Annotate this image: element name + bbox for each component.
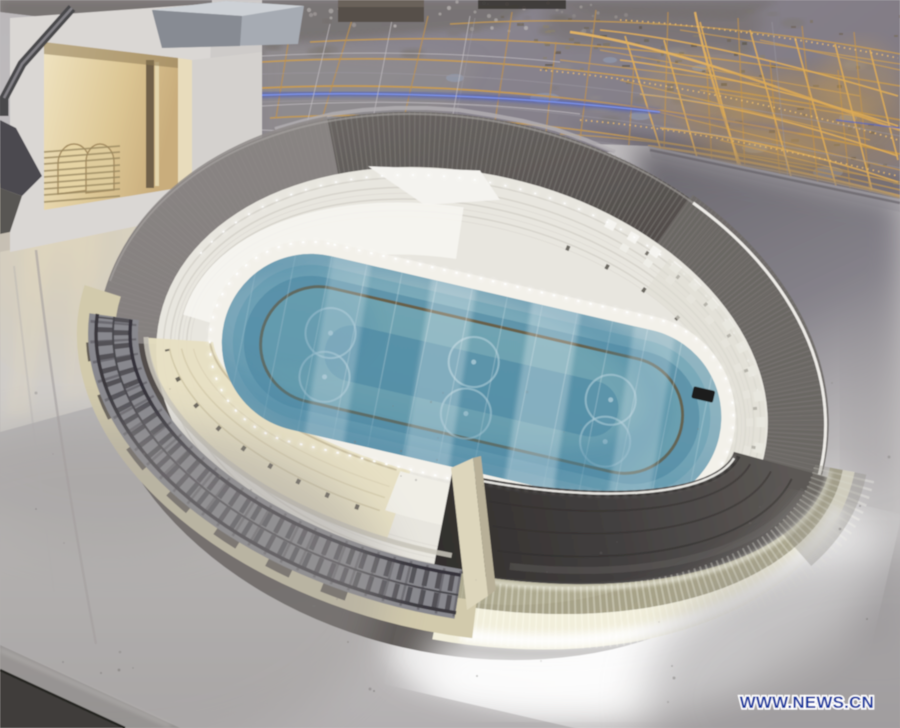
svg-text:WWW.NEWS.CN: WWW.NEWS.CN (740, 693, 874, 712)
